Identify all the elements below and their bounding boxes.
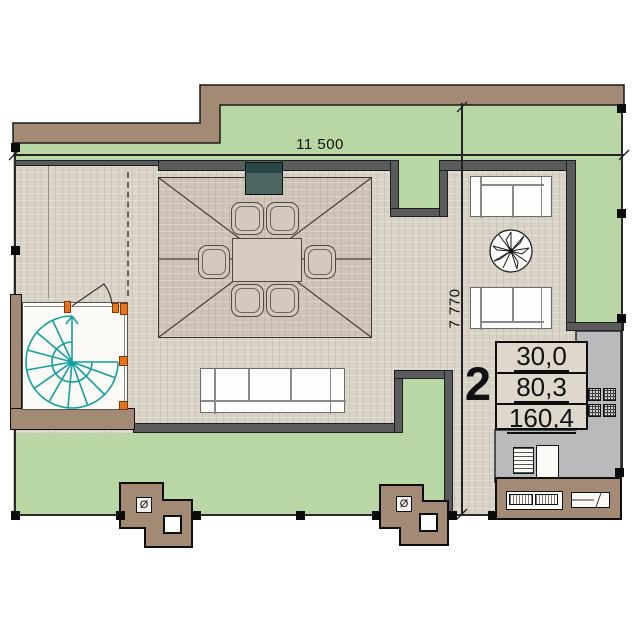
dimension-label-horizontal: 11 500 bbox=[250, 136, 390, 153]
floor-plan: Ø Ø 30,0 80,3 160,4 2 11 500 7 770 bbox=[0, 0, 632, 632]
column-marker bbox=[448, 511, 457, 520]
column-marker bbox=[11, 246, 20, 255]
column-marker bbox=[296, 511, 305, 520]
dimension-label-vertical: 7 770 bbox=[447, 279, 464, 339]
column-marker bbox=[617, 314, 626, 323]
dimension-ticks bbox=[0, 0, 632, 632]
column-marker bbox=[617, 104, 626, 113]
column-marker bbox=[488, 511, 497, 520]
column-marker bbox=[372, 511, 381, 520]
column-marker bbox=[11, 143, 20, 152]
column-marker bbox=[116, 511, 125, 520]
column-marker bbox=[192, 511, 201, 520]
column-marker bbox=[617, 209, 626, 218]
column-marker bbox=[615, 468, 624, 477]
column-marker bbox=[11, 511, 20, 520]
